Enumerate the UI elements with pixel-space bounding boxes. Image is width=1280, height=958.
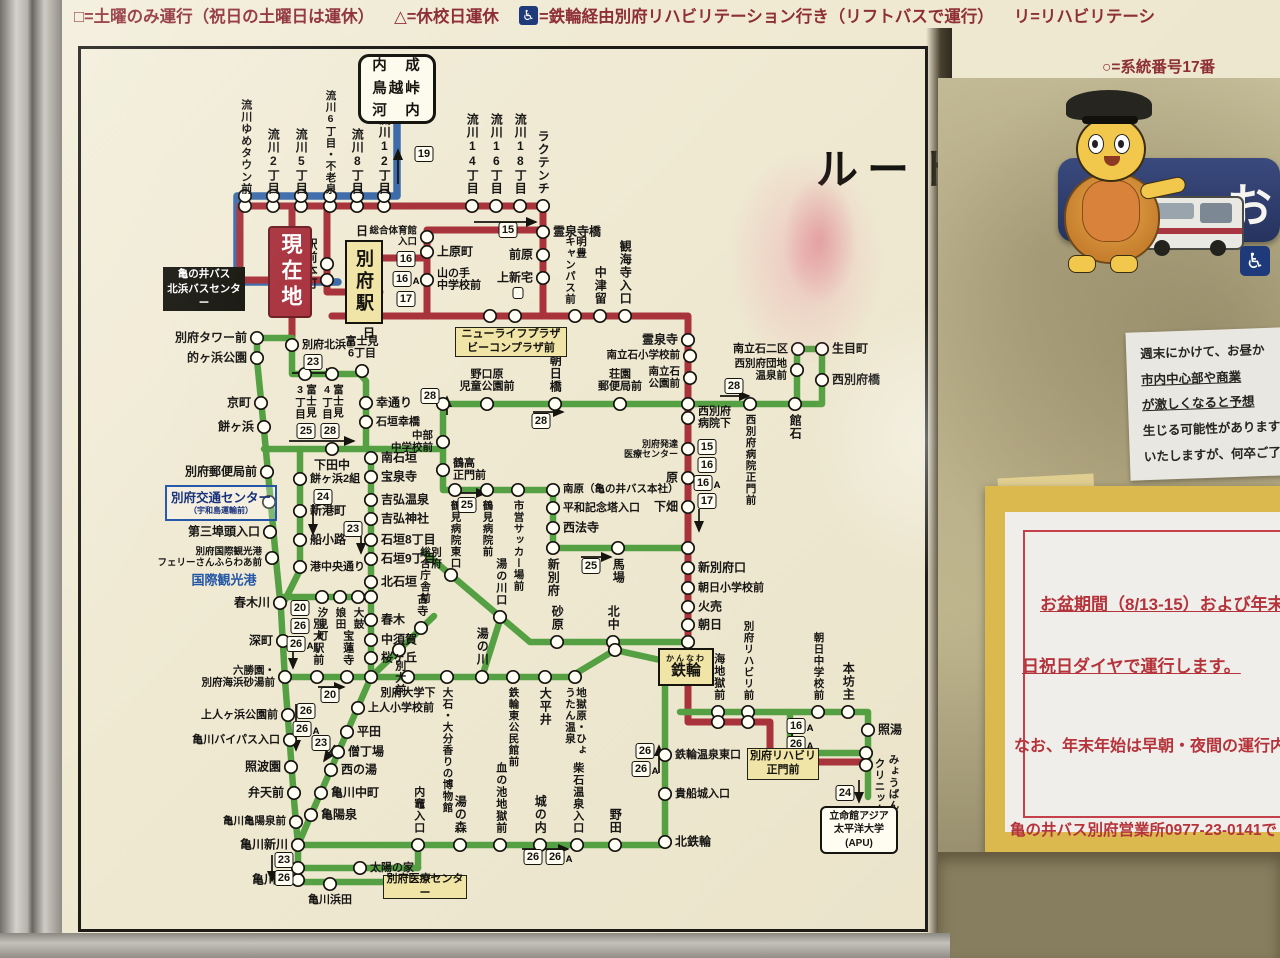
landmark-text: 日 [356,222,368,239]
mascot-turtle [1052,88,1192,273]
turtle-arm [1139,175,1187,200]
landmark-text: 立命館アジア [829,810,889,824]
landmark-text: 内 成 [372,55,422,77]
route-map-photo: □=土曜のみ運行（祝日の土曜日は運休）△=休校日運休♿=鉄輪経由別府リハビリテー… [0,0,1280,958]
landmark-text: 北浜バスセンター [163,282,245,311]
metal-frame-left [0,0,62,958]
turtle-vest [1082,180,1140,242]
landmark-text: 河 内 [372,100,422,122]
turtle-foot [1068,255,1096,273]
medical-center-box: 別府医療センター [383,875,467,899]
station-icon: 日 [360,324,378,340]
landmark-text: 正門前 [767,764,800,778]
rehab-gate-box: 別府リハビリ正門前 [747,748,819,780]
landmark-text: 現在地 [275,233,305,311]
notice-small-line: 生じる可能性があります [1142,414,1280,445]
driver-cap-brim [1082,116,1138,124]
bus-windshield [1200,203,1232,223]
turtle-eye [1088,134,1104,154]
landmark-text: 日 [363,324,375,341]
notice-line: お盆期間（8/13-15）および年末年 [1040,590,1280,615]
landmark-text: 別府医療センター [384,873,466,901]
landmark-text: 鳥越峠 [372,78,422,100]
turtle-mouth [1104,156,1120,166]
turtle-head [1076,116,1146,182]
notice-line: 日祝日ダイヤで運行します。 [1022,652,1241,677]
beacon-plaza-box: ニューライフプラザビーコンプラザ前 [455,327,567,357]
notice-line: なお、年末年始は早朝・夜間の運行内 [1014,732,1280,756]
notice-paper-small: 週末にかけて、お昼か市内中心部や商業が激しくなると予想生じる可能性がありますいた… [1125,327,1280,480]
landmark-text: （宇和島運輸前） [189,506,253,516]
wall-bottom [938,852,1280,958]
landmark-text: 太平洋大学 [834,823,884,837]
turtle-eye [1114,134,1130,154]
apu-box: 立命館アジア太平洋大学(APU) [820,806,898,854]
kotsu-center-box: 別府交通センター（宇和島運輸前） [165,485,277,521]
landmark-text: 別府交通センター [171,491,271,506]
bus-wheel [1210,240,1226,256]
metal-frame-bottom [0,933,950,958]
landmark-text: ビーコンプラザ前 [467,342,555,356]
landmark-text: 別府駅 [351,249,377,315]
landmark-text: 亀の井バス [178,267,231,282]
landmark-text: 鉄輪 [671,663,701,679]
notice-small-line: 週末にかけて、お昼か [1140,337,1280,368]
station-icon: 日 [353,222,371,238]
turtle-foot [1110,255,1138,273]
landmark-text: (APU) [845,837,873,851]
notice-line: 亀の井バス別府営業所0977-23-0141で [1010,818,1277,840]
you-are-here-box: 現在地 [268,226,312,318]
landmark-text: ニューライフプラザ [462,328,561,342]
destination-box: 内 成鳥越峠河 内 [358,54,436,124]
notice-small-line: いたしますが、何卒ご了承 [1143,440,1280,471]
wheelchair-icon: ♿ [1240,246,1270,276]
beppu-station-box: 別府駅 [345,240,383,324]
landmark-text: 別府リハビリ [750,750,816,764]
kannawa-box: かんなわ鉄輪 [658,648,714,686]
kitahama-bus-center-box: 亀の井バス北浜バスセンター [163,267,245,311]
